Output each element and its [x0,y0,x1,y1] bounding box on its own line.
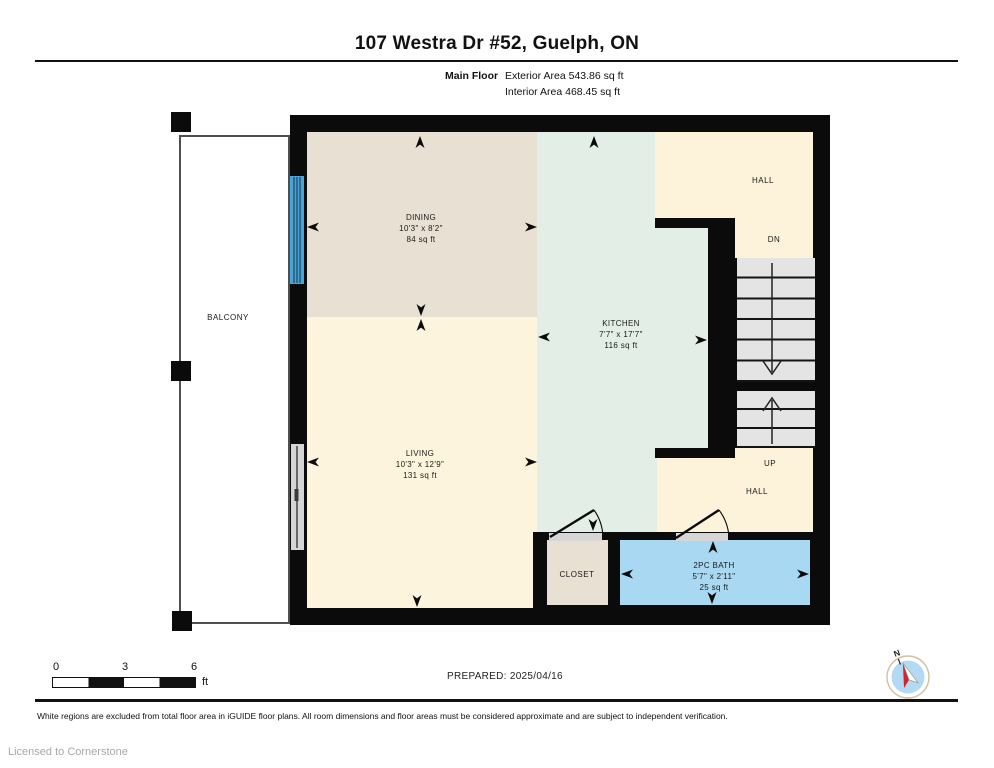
dining-label: DINING10'3" x 8'2"84 sq ft [341,212,501,245]
floor-plan-page: 107 Westra Dr #52, Guelph, ON Main Floor… [0,0,994,768]
stairs-down-label: DN [744,235,804,244]
balcony [179,135,290,624]
page-title: 107 Westra Dr #52, Guelph, ON [0,33,994,55]
scale-unit-label: ft [202,676,208,688]
exterior-area-label: Exterior Area 543.86 sq ft [505,70,623,82]
closet-label: CLOSET [537,570,617,579]
compass-icon: N [887,647,929,698]
balcony-post [171,112,191,132]
floor-label: Main Floor [445,70,498,82]
scale-tick-6: 6 [189,661,199,673]
living-label: LIVING10'3" x 12'9"131 sq ft [340,448,500,481]
balcony-post [172,611,192,631]
stairs-up [735,391,815,448]
scale-tick-0: 0 [51,661,61,673]
window [291,444,304,550]
kitchen-label: KITCHEN7'7" x 17'7"116 sq ft [541,318,701,351]
scale-tick-3: 3 [120,661,130,673]
footer-divider [35,699,958,702]
hall-upper-label: HALL [723,176,803,185]
door-opening [676,533,728,541]
balcony-label: BALCONY [178,313,278,322]
interior-area-label: Interior Area 468.45 sq ft [505,86,620,98]
sliding-door [290,176,304,284]
balcony-post [171,361,191,381]
wall [708,218,735,458]
hall-lower-label: HALL [717,487,797,496]
scale-bar [52,677,196,688]
license-text: Licensed to Cornerstone [8,746,128,758]
header-divider [35,60,958,62]
compass-north-label: N [892,647,901,658]
bath-label: 2PC BATH5'7" x 2'11"25 sq ft [634,560,794,593]
door-opening [549,533,602,541]
stairs-down [735,258,815,382]
disclaimer-text: White regions are excluded from total fl… [37,711,957,721]
wall [655,448,735,458]
stairs-up-label: UP [740,459,800,468]
wall [708,382,813,391]
prepared-date: PREPARED: 2025/04/16 [447,671,563,682]
